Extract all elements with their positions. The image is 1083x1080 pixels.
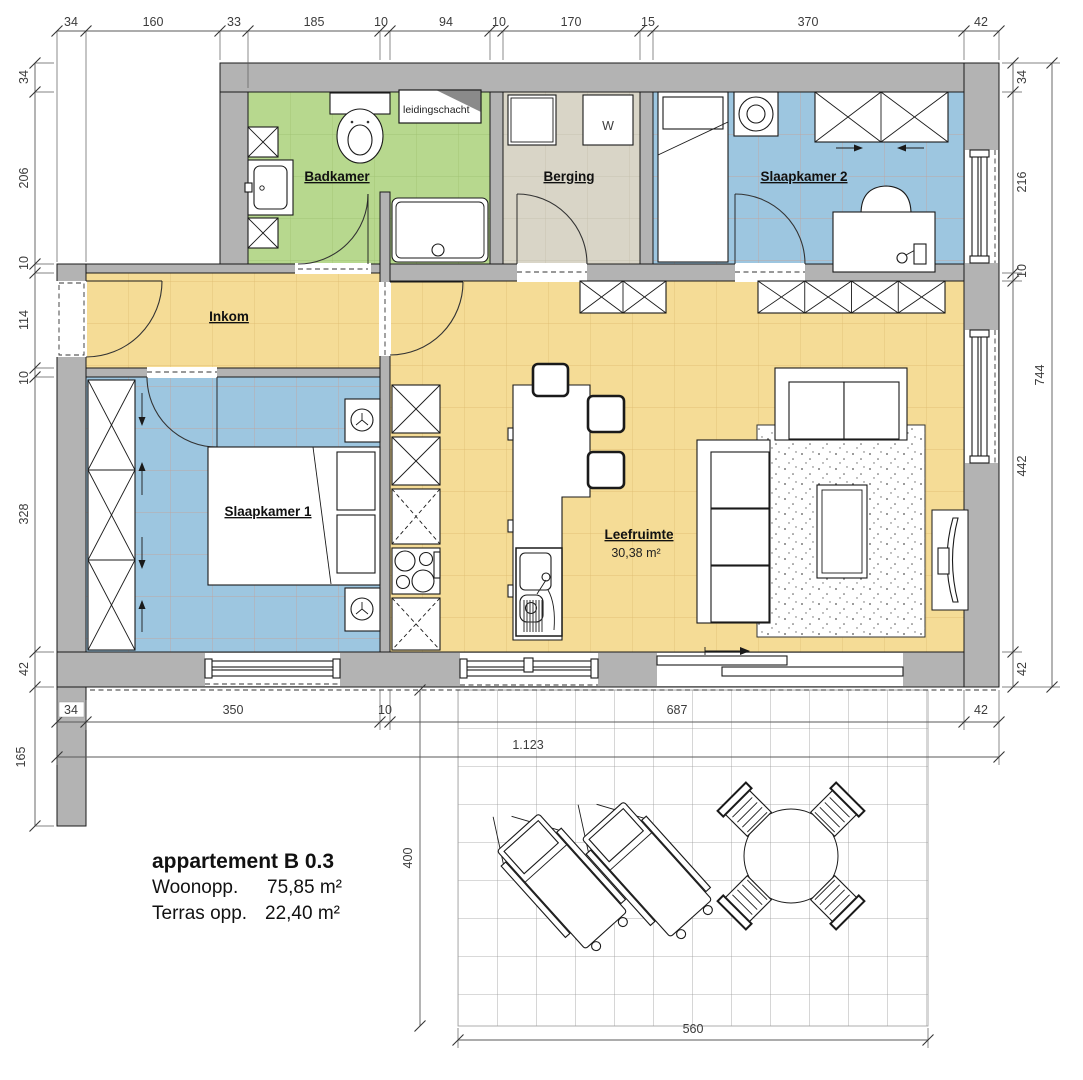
dim-label: 328	[17, 504, 31, 525]
dim-label: 42	[974, 703, 988, 717]
leefruimte-area: 30,38 m²	[611, 546, 660, 560]
dim-label: 15	[641, 15, 655, 29]
dim-label: 160	[143, 15, 164, 29]
kitchen-sink	[516, 548, 562, 636]
apartment-title: appartement B 0.3	[152, 850, 334, 873]
hall-wardrobe	[580, 281, 666, 313]
dim-label: 10	[492, 15, 506, 29]
tv-cabinet	[932, 510, 968, 610]
title-block: appartement B 0.3 Woonopp. 75,85 m² Terr…	[152, 850, 342, 924]
dim-label: 216	[1015, 172, 1029, 193]
duct-label: leidingschacht	[403, 104, 470, 116]
desk-lamp-icon	[897, 253, 907, 263]
living-wardrobe	[758, 281, 945, 313]
dim-label: 165	[14, 747, 28, 768]
sofa-two-seat	[775, 368, 907, 440]
floor-plan-page: leidingschacht W	[0, 0, 1083, 1080]
slaapkamer1-window	[205, 653, 340, 686]
coffee-table	[817, 485, 867, 578]
dim-label: 185	[304, 15, 325, 29]
dim-label: 744	[1033, 365, 1047, 386]
faucet-icon	[245, 183, 252, 192]
dining-chair	[588, 452, 624, 488]
wall-berging-left	[490, 92, 503, 264]
dim-label: 370	[798, 15, 819, 29]
slaapkamer2-window	[965, 150, 998, 263]
dim-label: 10	[374, 15, 388, 29]
dim-label: 560	[683, 1022, 704, 1036]
side-table	[734, 92, 778, 136]
single-bed	[658, 92, 728, 262]
badkamer-label: Badkamer	[304, 169, 370, 184]
dim-label: 10	[17, 371, 31, 385]
inkom-label: Inkom	[209, 309, 249, 324]
nightstand	[345, 399, 380, 442]
dim-label: 442	[1015, 456, 1029, 477]
wall-inkom-slaapkamer1	[86, 368, 390, 377]
dim-label: 34	[1015, 70, 1029, 84]
shower	[392, 198, 488, 262]
dim-label: 10	[378, 703, 392, 717]
kitchen-window	[460, 653, 598, 686]
slaapkamer1-label: Slaapkamer 1	[224, 504, 312, 519]
dim-label: 114	[17, 310, 31, 330]
dim-label: 400	[401, 848, 415, 869]
dim-label: 206	[17, 168, 31, 189]
leefruimte-label: Leefruimte	[604, 527, 674, 542]
dim-label: 42	[1015, 662, 1029, 676]
dim-label: 170	[561, 15, 582, 29]
nightstand	[345, 588, 380, 631]
floor-plan-drawing: leidingschacht W	[0, 0, 1083, 1080]
dining-chair	[533, 364, 568, 396]
dim-label: 687	[667, 703, 688, 717]
berging-label: Berging	[543, 169, 594, 184]
dim-label: 42	[17, 662, 31, 676]
dim-label: 42	[974, 15, 988, 29]
cooktop	[392, 548, 440, 594]
slaapkamer2-label: Slaapkamer 2	[760, 169, 847, 184]
wall-berging-right	[640, 92, 653, 264]
duct-box: leidingschacht	[399, 90, 481, 123]
dim-label: 10	[17, 256, 31, 270]
dim-label: 1.123	[512, 738, 543, 752]
dim-label: 350	[223, 703, 244, 717]
wall-top	[220, 63, 999, 92]
terrace-area-label: Terras opp.	[152, 903, 247, 924]
dim-label: 34	[64, 703, 78, 717]
terrace-area-value: 22,40 m²	[265, 903, 340, 924]
wall-badkamer-left	[220, 92, 248, 264]
appliance	[508, 95, 556, 145]
wall-spine	[380, 192, 390, 652]
dim-left: 34 206 10 114 10 328 42 165	[14, 58, 54, 832]
leefruimte-window	[965, 330, 998, 463]
dim-right: 34 216 10 442 42 744	[1002, 58, 1060, 693]
living-area-value: 75,85 m²	[267, 877, 342, 898]
dim-label: 10	[1015, 264, 1029, 278]
faucet-icon	[542, 573, 550, 581]
dim-label: 33	[227, 15, 241, 29]
washer-label: W	[602, 119, 614, 133]
sofa-three-seat	[697, 440, 770, 623]
dim-label: 94	[439, 15, 453, 29]
dim-label: 34	[17, 70, 31, 84]
living-area-label: Woonopp.	[152, 877, 238, 898]
dining-chair	[588, 396, 624, 432]
dim-label: 34	[64, 15, 78, 29]
